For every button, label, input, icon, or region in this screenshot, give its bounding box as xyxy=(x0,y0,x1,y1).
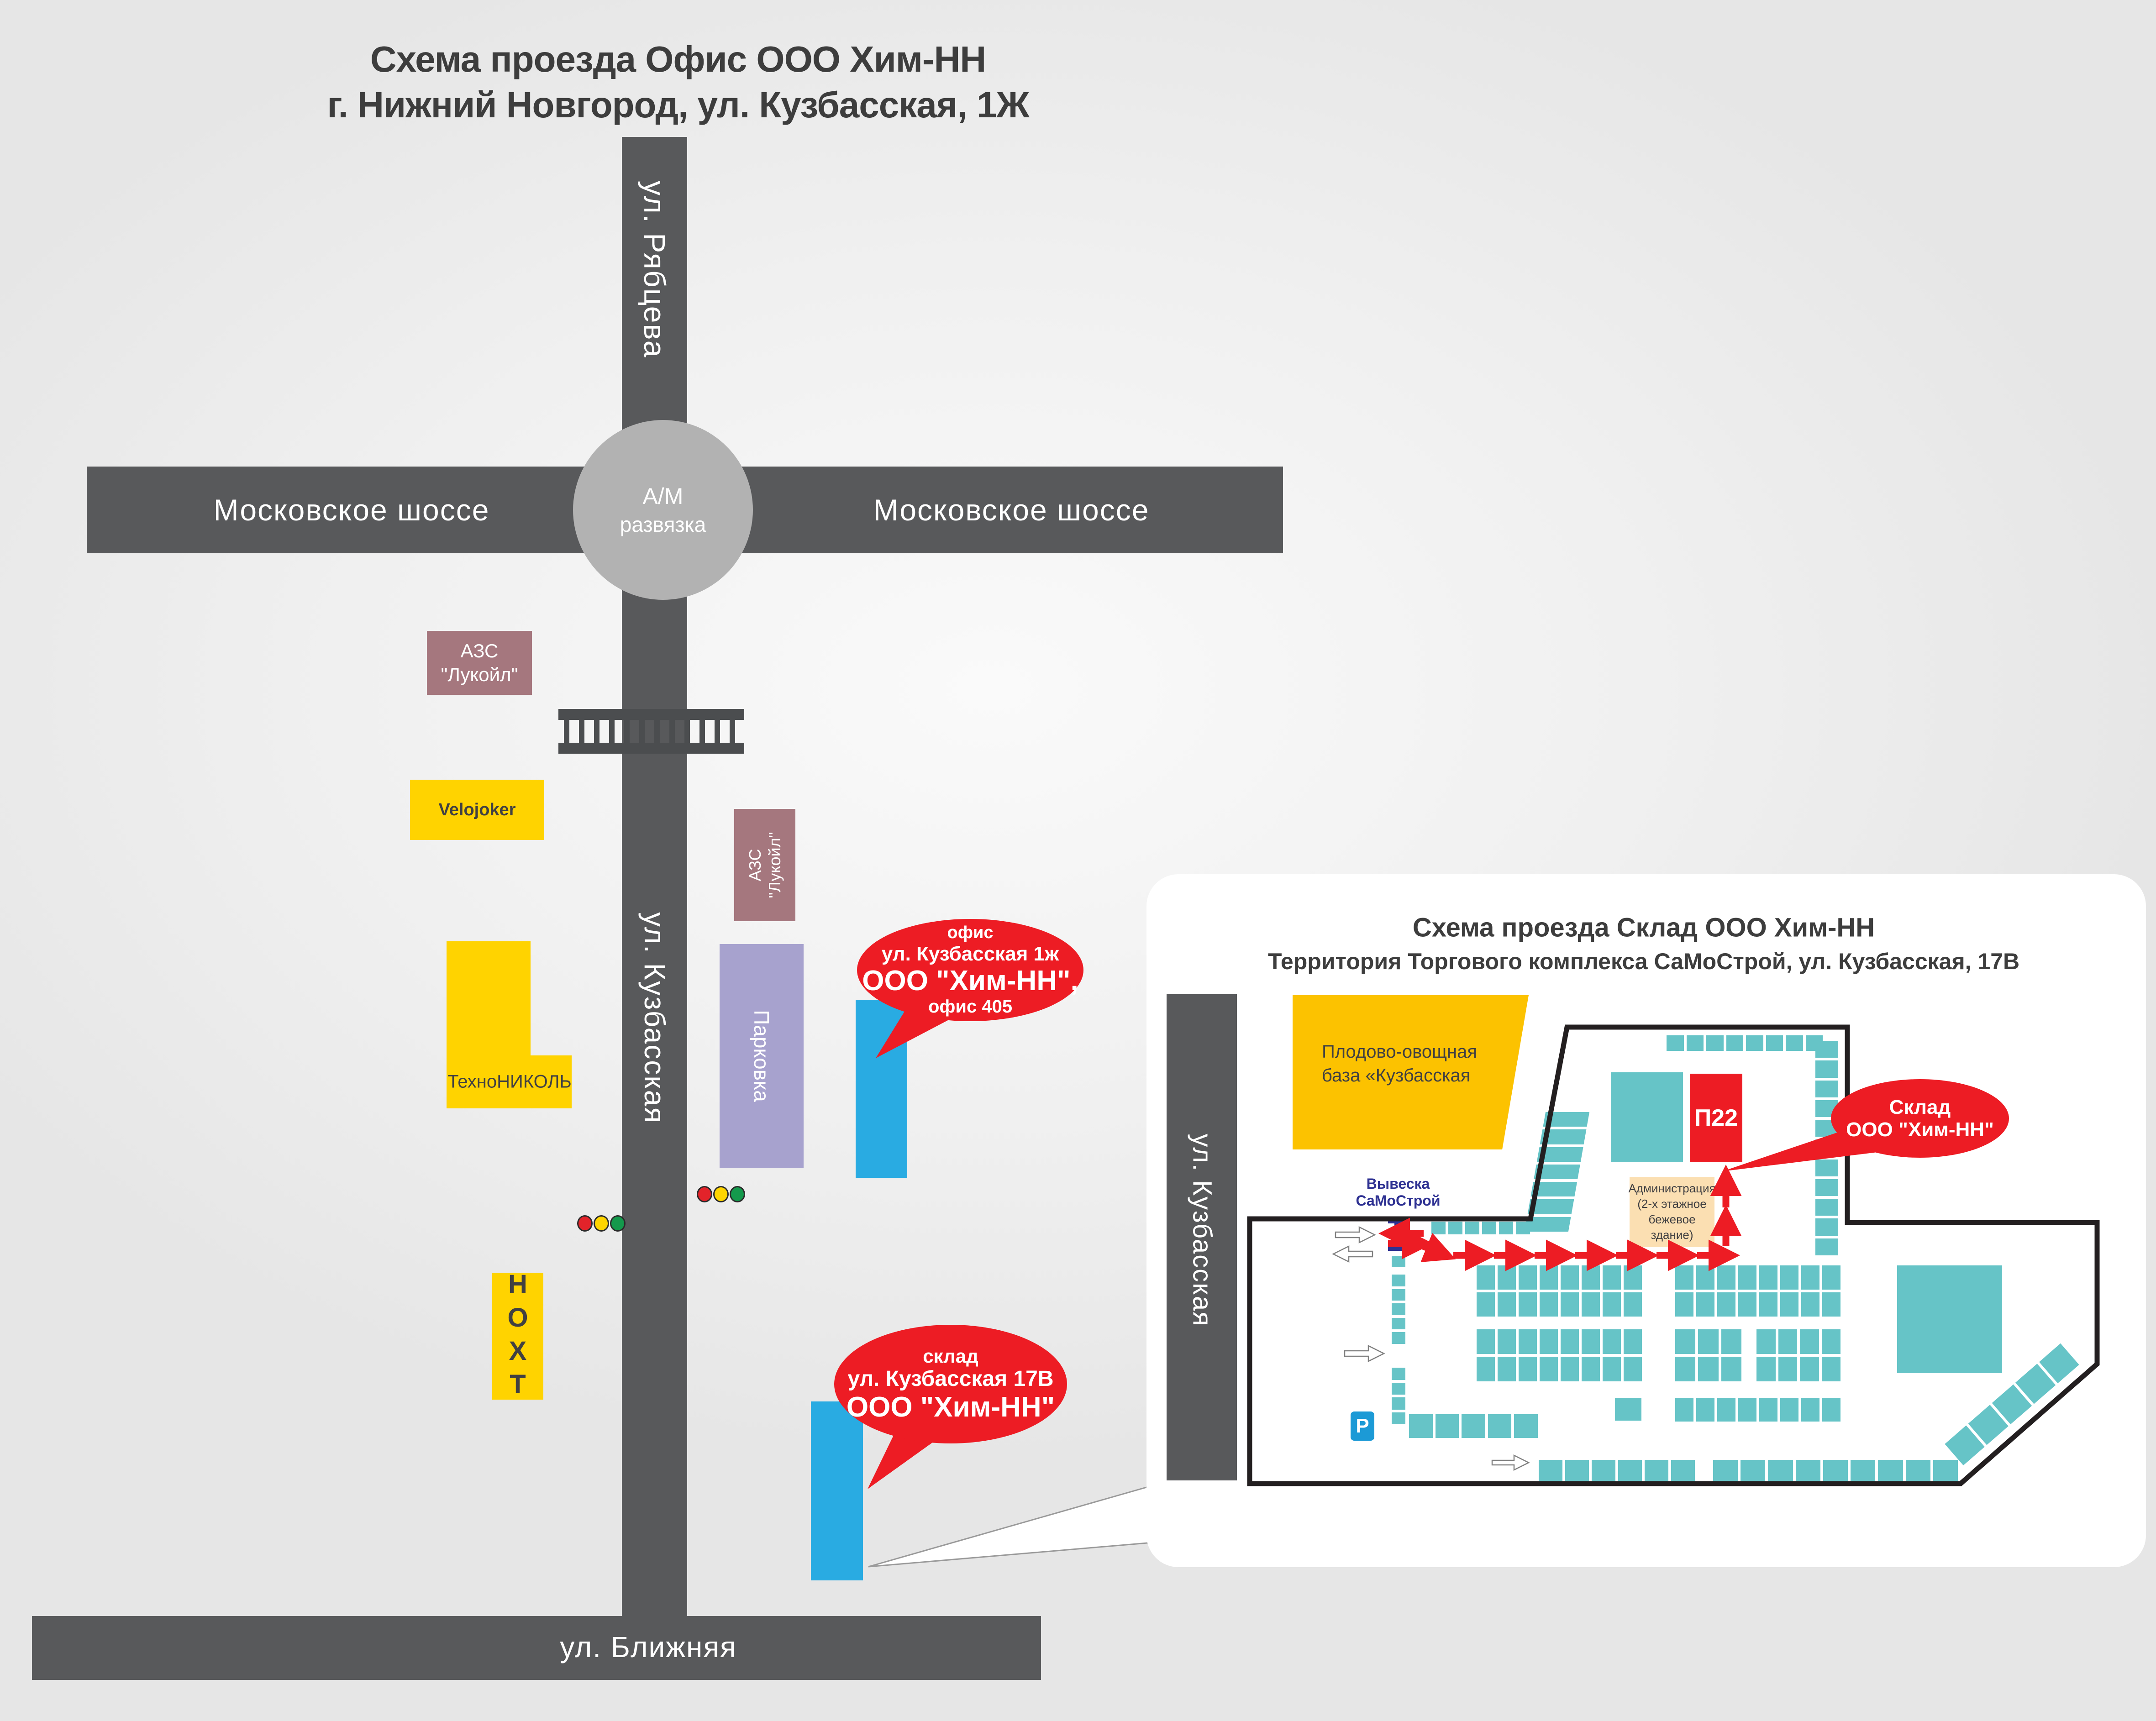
inset-sklad-line2: ООО "Хим-НН" xyxy=(1846,1118,1994,1141)
sklad-callout-bubble: склад ул. Кузбасская 17В ООО "Хим-НН" xyxy=(834,1325,1067,1443)
pavilion-bottom-left-row xyxy=(1409,1414,1538,1438)
pavilion-large-left xyxy=(1611,1072,1683,1162)
route-map-page: Схема проезда Офис ООО Хим-НН г. Нижний … xyxy=(0,0,2156,1721)
office-callout-line1: офис xyxy=(947,923,994,943)
inset-title-line1: Схема проезда Склад ООО Хим-НН xyxy=(1413,913,1875,943)
market-grid-b xyxy=(1675,1265,1840,1317)
market-grid-d xyxy=(1675,1329,1741,1381)
market-grid-a xyxy=(1477,1265,1642,1317)
pavilion-top-row xyxy=(1667,1035,1823,1051)
market-row-right xyxy=(1675,1398,1840,1422)
admin-line2: (2-х этажное xyxy=(1637,1196,1706,1212)
inset-road-label: ул. Кузбасская xyxy=(1187,1134,1218,1327)
admin-line3: бежевое xyxy=(1648,1212,1695,1228)
inset-sklad-line1: Склад xyxy=(1889,1096,1951,1118)
bottom-row-left xyxy=(1539,1460,1695,1483)
inset-title-line2: Территория Торгового комплекса СаМоСтрой… xyxy=(1268,948,2019,975)
market-grid-c xyxy=(1477,1329,1642,1381)
inset-content: Схема проезда Склад ООО Хим-НН Территори… xyxy=(0,0,2156,1721)
sklad-callout-line1: склад xyxy=(923,1345,978,1367)
samostroy-sign-post xyxy=(1388,1218,1408,1251)
signboard-line2: СаМоСтрой xyxy=(1356,1192,1440,1209)
produce-base-line1: Плодово-овощная xyxy=(1322,1040,1477,1064)
pavilion-col-5 xyxy=(1392,1275,1405,1344)
admin-line1: Администрация xyxy=(1628,1181,1715,1196)
p22-label: П22 xyxy=(1694,1104,1738,1132)
pavilion-right-strip xyxy=(1815,1041,1838,1255)
office-callout-line2: ул. Кузбасская 1ж xyxy=(882,943,1059,965)
sklad-callout-line3: ООО "Хим-НН" xyxy=(847,1391,1055,1423)
pavilion-single-2 xyxy=(1615,1398,1641,1421)
pavilion-single-1 xyxy=(1392,1256,1405,1267)
bottom-row-right xyxy=(1713,1460,1958,1483)
sklad-callout-line2: ул. Кузбасская 17В xyxy=(847,1367,1053,1391)
pavilion-entrance-row xyxy=(1431,1222,1530,1234)
office-callout-line3: ООО "Хим-НН", xyxy=(862,965,1078,997)
parking-sign-label: P xyxy=(1356,1415,1369,1438)
office-callout-line4: офис 405 xyxy=(928,997,1012,1017)
produce-base-line2: база «Кузбасская xyxy=(1322,1064,1477,1087)
inset-sklad-bubble: Склад ООО "Хим-НН" xyxy=(1831,1079,2009,1158)
p22-building: П22 xyxy=(1690,1074,1742,1162)
pavilion-slant-column xyxy=(1525,1112,1589,1232)
pavilion-large-right xyxy=(1897,1265,2002,1373)
pavilion-col-4 xyxy=(1392,1368,1405,1424)
market-grid-e xyxy=(1756,1329,1840,1381)
admin-line4: здание) xyxy=(1651,1228,1693,1243)
administration-building: Администрация (2-х этажное бежевое здани… xyxy=(1630,1177,1714,1247)
office-callout-bubble: офис ул. Кузбасская 1ж ООО "Хим-НН", офи… xyxy=(857,919,1083,1021)
parking-sign: P xyxy=(1351,1411,1374,1441)
signboard-label: Вывеска СаМоСтрой xyxy=(1356,1175,1440,1209)
signboard-line1: Вывеска xyxy=(1356,1175,1440,1192)
produce-base-label: Плодово-овощная база «Кузбасская xyxy=(1322,1040,1477,1087)
